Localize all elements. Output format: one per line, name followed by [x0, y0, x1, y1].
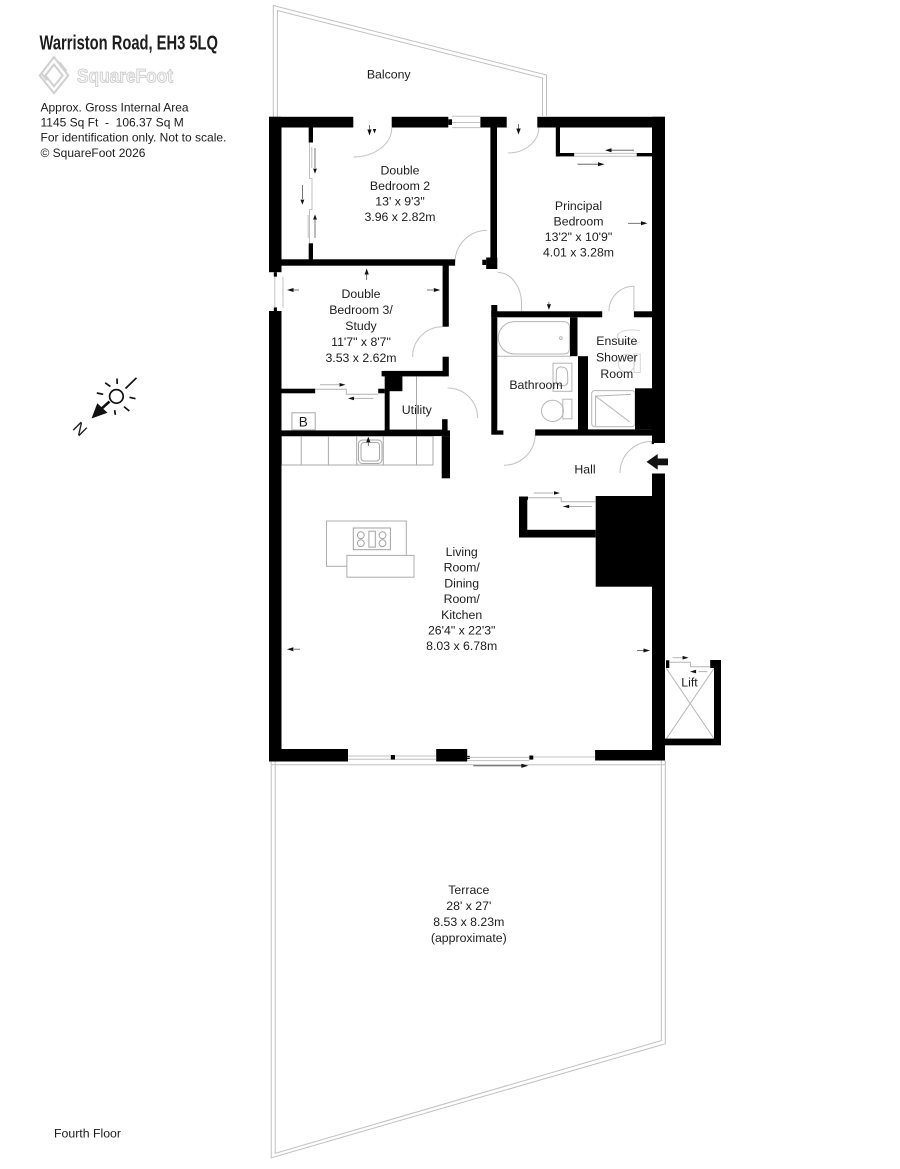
svg-text:4.01 x 3.28m: 4.01 x 3.28m [543, 246, 614, 260]
svg-text:Hall: Hall [574, 463, 595, 477]
svg-text:13' x 9'3": 13' x 9'3" [375, 195, 424, 209]
svg-text:Bedroom: Bedroom [554, 215, 604, 229]
svg-text:Double: Double [342, 287, 381, 301]
svg-text:Room: Room [600, 367, 633, 381]
svg-text:© SquareFoot 2026: © SquareFoot 2026 [41, 146, 146, 160]
svg-text:Living: Living [446, 545, 478, 559]
svg-text:Approx. Gross Internal Area: Approx. Gross Internal Area [41, 101, 189, 115]
svg-text:Bathroom: Bathroom [509, 378, 562, 392]
svg-text:Terrace: Terrace [448, 883, 489, 897]
svg-text:Utility: Utility [402, 403, 433, 417]
svg-text:Bedroom 2: Bedroom 2 [370, 179, 430, 193]
svg-text:1145 Sq Ft - 106.37 Sq M: 1145 Sq Ft - 106.37 Sq M [41, 116, 184, 130]
svg-text:(approximate): (approximate) [431, 931, 507, 945]
svg-text:Shower: Shower [596, 351, 638, 365]
svg-text:Room/: Room/ [444, 592, 481, 606]
svg-text:SquareFoot: SquareFoot [77, 67, 174, 88]
svg-text:11'7" x 8'7": 11'7" x 8'7" [331, 335, 391, 349]
svg-text:Double: Double [381, 164, 420, 178]
svg-text:N: N [70, 418, 91, 439]
svg-text:Kitchen: Kitchen [441, 608, 482, 622]
svg-text:Dining: Dining [444, 576, 479, 590]
svg-text:13'2" x 10'9": 13'2" x 10'9" [545, 230, 612, 244]
svg-text:Lift: Lift [681, 676, 698, 690]
svg-text:Bedroom 3/: Bedroom 3/ [329, 303, 393, 317]
svg-text:B: B [299, 415, 308, 430]
svg-text:Balcony: Balcony [367, 67, 412, 81]
svg-text:3.96 x 2.82m: 3.96 x 2.82m [364, 210, 435, 224]
svg-text:28' x 27': 28' x 27' [446, 899, 491, 913]
svg-text:Ensuite: Ensuite [596, 334, 637, 348]
svg-text:For identification only. Not t: For identification only. Not to scale. [41, 130, 227, 144]
svg-text:26'4" x 22'3": 26'4" x 22'3" [428, 624, 495, 638]
svg-text:Fourth Floor: Fourth Floor [54, 1127, 121, 1141]
svg-text:Warriston Road, EH3 5LQ: Warriston Road, EH3 5LQ [40, 32, 219, 54]
svg-text:Study: Study [345, 319, 377, 333]
svg-text:Principal: Principal [555, 199, 602, 213]
svg-text:Room/: Room/ [444, 561, 481, 575]
svg-text:3.53 x 2.62m: 3.53 x 2.62m [325, 351, 396, 365]
svg-text:8.03 x 6.78m: 8.03 x 6.78m [426, 639, 497, 653]
svg-text:8.53 x 8.23m: 8.53 x 8.23m [433, 915, 504, 929]
